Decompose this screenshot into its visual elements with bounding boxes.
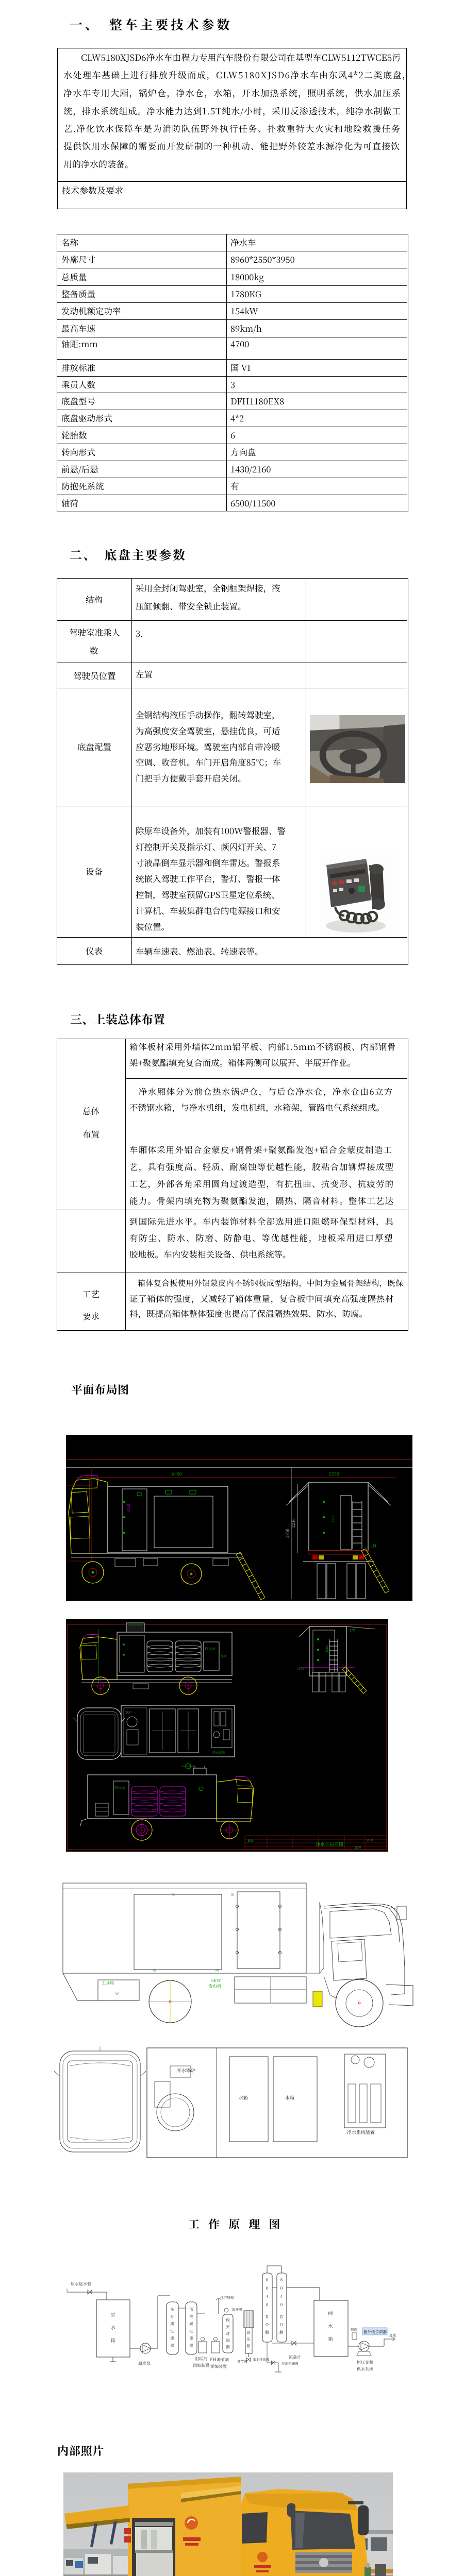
svg-text:高: 高 [246,2330,251,2335]
svg-text:⊕: ⊕ [230,1892,235,1897]
svg-text:阻垢剂: 阻垢剂 [195,2356,207,2362]
svg-text:1450: 1450 [126,1504,131,1513]
svg-text:取样阀: 取样阀 [232,2307,242,2312]
svg-text:4: 4 [280,2294,283,2299]
svg-text:水: 水 [328,2323,333,2329]
svg-text:图号: 图号 [367,1838,373,1842]
svg-text:出水: 出水 [388,2333,396,2338]
svg-text:6KW: 6KW [211,1978,221,1984]
svg-text:0: 0 [266,2285,268,2291]
svg-text:质: 质 [170,2321,174,2327]
svg-text:供水系统: 供水系统 [357,2366,373,2372]
svg-text:保: 保 [226,2317,230,2323]
svg-text:炭: 炭 [189,2321,193,2327]
svg-text:0: 0 [266,2302,268,2308]
svg-text:1985: 1985 [297,1667,304,1671]
svg-text:⊕: ⊕ [152,1968,156,1974]
svg-text:过: 过 [189,2328,193,2334]
svg-text:净水系统装置: 净水系统装置 [347,2129,375,2136]
svg-text:添加装置: 添加装置 [193,2363,209,2368]
svg-text:8: 8 [280,2277,283,2283]
svg-text:器: 器 [170,2343,174,2348]
svg-text:2550: 2550 [329,1470,339,1477]
svg-text:介: 介 [170,2314,174,2319]
svg-text:上料: 上料 [349,1628,356,1633]
svg-text:器: 器 [189,2343,193,2348]
svg-text:泵: 泵 [246,2343,251,2349]
svg-text:PH: PH [209,2355,217,2363]
svg-text:添加装置: 添加装置 [210,2364,227,2369]
svg-text:⊕: ⊕ [115,1991,119,1996]
svg-text:紫外线杀菌器: 紫外线杀菌器 [363,2329,387,2335]
svg-text:浓水排放阀: 浓水排放阀 [253,2357,270,2362]
svg-text:0: 0 [280,2302,283,2308]
svg-text:6450: 6450 [172,1470,182,1477]
svg-text:水: 水 [110,2324,115,2331]
svg-text:膜: 膜 [279,2330,284,2335]
svg-text:净水系统: 净水系统 [212,1750,225,1755]
svg-text:器: 器 [226,2344,230,2350]
svg-text:排空球阀: 排空球阀 [220,2295,234,2300]
svg-text:流量计: 流量计 [289,2354,301,2360]
svg-text:压: 压 [246,2336,251,2342]
svg-text:箱: 箱 [110,2337,115,2344]
svg-text:安: 安 [226,2324,230,2330]
svg-text:滤: 滤 [189,2335,193,2341]
svg-text:锅炉: 锅炉 [125,1710,131,1715]
svg-text:R: R [266,2314,269,2320]
svg-text:2240: 2240 [330,1514,336,1522]
svg-text:滤: 滤 [226,2337,230,2343]
svg-text:8: 8 [266,2277,268,2283]
svg-text:多: 多 [170,2307,174,2312]
svg-text:过: 过 [170,2328,174,2334]
svg-text:0: 0 [280,2285,283,2291]
svg-text:水箱: 水箱 [239,2094,248,2101]
svg-text:净水: 净水 [221,1654,227,1658]
svg-text:恒压变频: 恒压变频 [357,2360,374,2365]
svg-text:箱: 箱 [328,2335,333,2342]
svg-text:原: 原 [110,2311,115,2318]
svg-text:2240: 2240 [291,1518,296,1528]
svg-text:调节剂: 调节剂 [217,2357,229,2363]
svg-text:工具箱: 工具箱 [102,1980,114,1986]
svg-text:净水车布局图: 净水车布局图 [316,1841,343,1848]
svg-text:过: 过 [226,2331,230,2336]
svg-text:冲洗电磁阀: 冲洗电磁阀 [281,2361,299,2366]
svg-text:O: O [280,2322,283,2328]
svg-text:活: 活 [189,2307,193,2312]
svg-text:R: R [280,2314,283,2320]
svg-text:水箱: 水箱 [285,2094,294,2101]
svg-text:FSJB08: FSJB08 [205,1646,215,1651]
svg-text:原水泵: 原水泵 [138,2361,151,2366]
svg-text:滤: 滤 [170,2335,174,2341]
svg-text:纯: 纯 [328,2310,333,2316]
svg-text:发电机: 发电机 [209,1984,221,1989]
svg-text:调节阀: 调节阀 [237,2359,247,2364]
svg-text:球阀: 球阀 [351,2327,358,2332]
svg-text:O: O [266,2322,269,2328]
svg-text:上料: 上料 [369,1544,376,1549]
svg-text:1982: 1982 [324,1646,329,1652]
svg-text:性: 性 [189,2314,193,2319]
svg-text:设计: 设计 [247,1838,254,1843]
svg-text:原水进水管: 原水进水管 [71,2281,91,2287]
svg-text:膜: 膜 [265,2330,269,2335]
svg-text:FSJB08: FSJB08 [114,1785,125,1790]
svg-text:开水锅炉: 开水锅炉 [177,2067,195,2074]
svg-text:⊕: ⊕ [215,1968,219,1974]
svg-text:⊕: ⊕ [172,1892,176,1897]
svg-text:3950: 3950 [285,1529,290,1538]
svg-text:比例: 比例 [355,1845,361,1850]
svg-text:4: 4 [266,2294,269,2299]
